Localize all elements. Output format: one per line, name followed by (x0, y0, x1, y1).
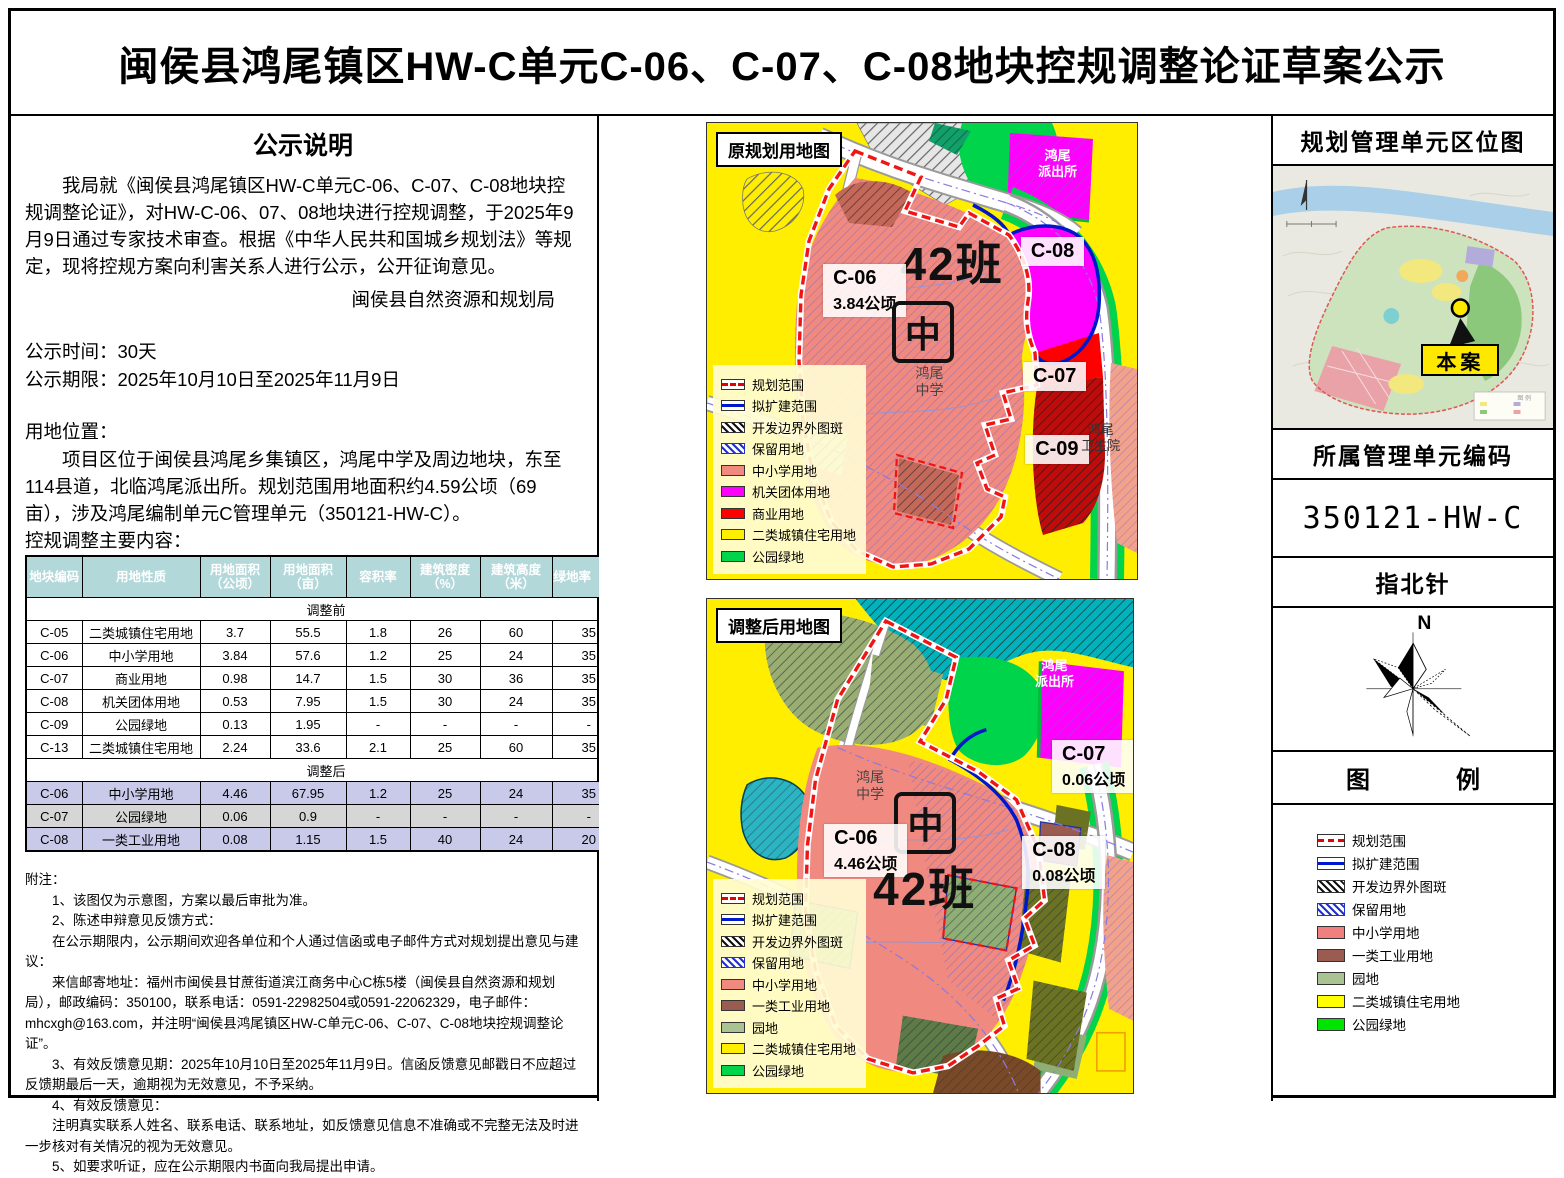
legend-swatch-hatch-blue-icon (721, 957, 745, 968)
plot-c08-label: C-08 0.08公顷 (1022, 836, 1105, 889)
legend-label: 中小学用地 (752, 975, 817, 994)
map-after-legend: 规划范围拟扩建范围开发边界外图斑保留用地中小学用地一类工业用地园地二类城镇住宅用… (713, 879, 866, 1088)
unit-code-value: 350121-HW-C (1273, 480, 1553, 558)
table-cell: 中小学用地 (82, 782, 200, 805)
announce-signature: 闽侯县自然资源和规划局 (25, 286, 555, 312)
legend-label: 园地 (1352, 968, 1379, 988)
adjustment-table: 地块编码用地性质用地面积 （公顷）用地面积 （亩）容积率建筑密度 （%）建筑高度… (25, 555, 627, 852)
location-map-title: 规划管理单元区位图 (1273, 116, 1553, 166)
legend-item: 保留用地 (721, 439, 856, 458)
unit-code-title: 所属管理单元编码 (1273, 430, 1553, 480)
table-cell: - (480, 805, 552, 828)
table-row: C-06中小学用地3.8457.61.2252435 (26, 644, 626, 667)
compass-title: 指北针 (1273, 558, 1553, 608)
legend-swatch-fill-icon (1317, 1018, 1345, 1031)
class-count-label: 42班 (901, 228, 1004, 294)
table-header-cell: 容积率 (346, 556, 410, 598)
legend-label: 规划范围 (1352, 830, 1406, 850)
maps-panel: 原规划用地图 鸿尾 派出所 C-08 42班 C-06 3.84公顷 中 鸿尾 … (599, 116, 1273, 1101)
legend-label: 机关团体用地 (752, 482, 830, 501)
table-cell: C-07 (26, 805, 82, 828)
note-line: 1、该图仅为示意图，方案以最后审批为准。 (25, 891, 581, 912)
legend-item: 拟扩建范围 (1317, 853, 1553, 873)
plot-c09-code: C-09 (1035, 438, 1078, 461)
legend-label: 拟扩建范围 (752, 396, 817, 415)
table-cell: 55.5 (270, 621, 346, 644)
table-cell: 4.46 (200, 782, 270, 805)
table-section-label: 调整前 (26, 598, 626, 621)
plot-c08-code: C-08 (1032, 839, 1095, 862)
school-name-label: 鸿尾 中学 (856, 769, 884, 803)
map-before: 原规划用地图 鸿尾 派出所 C-08 42班 C-06 3.84公顷 中 鸿尾 … (706, 122, 1138, 580)
table-cell: 0.98 (200, 667, 270, 690)
legend-label: 拟扩建范围 (1352, 853, 1420, 873)
legend-swatch-fill-icon (721, 1043, 745, 1054)
table-cell: C-06 (26, 782, 82, 805)
table-cell: 1.5 (346, 690, 410, 713)
map-after-title: 调整后用地图 (716, 608, 842, 643)
legend-swatch-hatch-black-icon (1317, 880, 1345, 893)
location-map: 本案 图 例 (1273, 166, 1553, 430)
table-cell: 1.5 (346, 667, 410, 690)
legend-label: 开发边界外图斑 (752, 418, 843, 437)
table-cell: 25 (410, 782, 480, 805)
table-cell: 1.15 (270, 828, 346, 852)
class-count-label: 42班 (873, 853, 976, 919)
plot-c07-area-value: 0.06公顷 (1062, 766, 1125, 790)
map-before-legend: 规划范围拟扩建范围开发边界外图斑保留用地中小学用地机关团体用地商业用地二类城镇住… (713, 365, 866, 574)
compass-section: N (1273, 608, 1553, 752)
table-heading: 控规调整主要内容： (25, 527, 581, 555)
legend-swatch-fill-icon (1317, 972, 1345, 985)
table-cell: 14.7 (270, 667, 346, 690)
table-cell: 中小学用地 (82, 644, 200, 667)
legend-swatch-dash-icon (721, 893, 745, 904)
svg-text:N: N (1417, 613, 1431, 634)
legend-label: 保留用地 (752, 953, 804, 972)
legend-label: 保留用地 (752, 439, 804, 458)
announce-heading: 公示说明 (25, 126, 581, 162)
table-cell: 30 (410, 667, 480, 690)
legend-item: 规划范围 (721, 889, 856, 908)
note-line: 5、如要求听证，应在公示期限内书面向我局提出申请。 (25, 1157, 581, 1178)
police-station-label: 鸿尾 派出所 (1038, 148, 1077, 180)
announcement-text-panel: 公示说明 我局就《闽侯县鸿尾镇区HW-C单元C-06、C-07、C-08地块控规… (11, 116, 599, 1101)
legend-swatch-fill-icon (721, 508, 745, 519)
right-panel: 规划管理单元区位图 (1273, 116, 1553, 1101)
table-cell: - (346, 713, 410, 736)
table-cell: 24 (480, 690, 552, 713)
table-cell: 3.7 (200, 621, 270, 644)
table-cell: 26 (410, 621, 480, 644)
legend-item: 二类城镇住宅用地 (721, 1039, 856, 1058)
table-cell: C-13 (26, 736, 82, 759)
legend-swatch-fill-icon (721, 529, 745, 540)
table-cell: 1.95 (270, 713, 346, 736)
table-cell: 二类城镇住宅用地 (82, 621, 200, 644)
legend-title-right: 例 (1456, 760, 1480, 795)
table-cell: 1.2 (346, 644, 410, 667)
legend-swatch-line-icon (1317, 857, 1345, 870)
table-cell: C-09 (26, 713, 82, 736)
legend-item: 公园绿地 (1317, 1014, 1553, 1034)
table-cell: 机关团体用地 (82, 690, 200, 713)
legend-item: 拟扩建范围 (721, 396, 856, 415)
plot-c06-code: C-06 (833, 267, 896, 290)
table-header-cell: 用地面积 （公顷） (200, 556, 270, 598)
table-cell: 0.06 (200, 805, 270, 828)
table-row: C-08机关团体用地0.537.951.5302435 (26, 690, 626, 713)
legend-label: 规划范围 (752, 889, 804, 908)
map-before-title: 原规划用地图 (716, 132, 842, 167)
table-header-cell: 地块编码 (26, 556, 82, 598)
table-cell: C-05 (26, 621, 82, 644)
legend-label: 商业用地 (752, 504, 804, 523)
legend-swatch-fill-icon (1317, 949, 1345, 962)
legend-item: 园地 (1317, 968, 1553, 988)
table-cell: 24 (480, 644, 552, 667)
legend-swatch-hatch-black-icon (721, 422, 745, 433)
legend-label: 中小学用地 (1352, 922, 1420, 942)
table-cell: 公园绿地 (82, 713, 200, 736)
table-cell: C-08 (26, 828, 82, 852)
announce-body: 我局就《闽侯县鸿尾镇区HW-C单元C-06、C-07、C-08地块控规调整论证》… (25, 172, 581, 280)
table-cell: 67.95 (270, 782, 346, 805)
legend-label: 一类工业用地 (752, 996, 830, 1015)
table-cell: 0.9 (270, 805, 346, 828)
publicity-period: 公示期限：2025年10月10日至2025年11月9日 (25, 366, 581, 394)
legend-item: 中小学用地 (721, 975, 856, 994)
plot-c07-code: C-07 (1033, 365, 1076, 388)
table-cell: 0.53 (200, 690, 270, 713)
legend-item: 拟扩建范围 (721, 910, 856, 929)
plot-c06-area-value: 3.84公顷 (833, 290, 896, 314)
table-cell: - (410, 713, 480, 736)
legend-swatch-dash-icon (721, 379, 745, 390)
legend-label: 开发边界外图斑 (1352, 876, 1447, 896)
plot-c08-label: C-08 (1021, 237, 1084, 266)
plot-c08-area-value: 0.08公顷 (1032, 862, 1095, 886)
table-header-cell: 用地性质 (82, 556, 200, 598)
table-cell: 0.08 (200, 828, 270, 852)
table-cell: 2.24 (200, 736, 270, 759)
legend-label: 拟扩建范围 (752, 910, 817, 929)
table-header-cell: 建筑高度 （米） (480, 556, 552, 598)
legend-label: 公园绿地 (1352, 1014, 1406, 1034)
police-station-label: 鸿尾 派出所 (1035, 658, 1074, 690)
table-row: C-09公园绿地0.131.95---- (26, 713, 626, 736)
legend-item: 规划范围 (721, 375, 856, 394)
legend-item: 规划范围 (1317, 830, 1553, 850)
legend-swatch-fill-icon (721, 465, 745, 476)
plot-c09-label: C-09 (1025, 435, 1088, 464)
case-location-label: 本案 (1421, 344, 1499, 376)
legend-label: 二类城镇住宅用地 (752, 1039, 856, 1058)
table-cell: 2.1 (346, 736, 410, 759)
table-cell: - (346, 805, 410, 828)
legend-swatch-line-icon (721, 400, 745, 411)
school-name-label: 鸿尾 中学 (916, 365, 944, 399)
table-cell: 40 (410, 828, 480, 852)
legend-swatch-fill-icon (721, 979, 745, 990)
legend-swatch-dash-icon (1317, 834, 1345, 847)
note-line: 2、陈述申辩意见反馈方式： (25, 911, 581, 932)
legend-label: 开发边界外图斑 (752, 932, 843, 951)
legend-swatch-hatch-blue-icon (721, 443, 745, 454)
legend-item: 园地 (721, 1018, 856, 1037)
right-panel-legend: 规划范围拟扩建范围开发边界外图斑保留用地中小学用地一类工业用地园地二类城镇住宅用… (1273, 805, 1553, 1101)
legend-label: 保留用地 (1352, 899, 1406, 919)
legend-label: 中小学用地 (752, 461, 817, 480)
table-section-label: 调整后 (26, 759, 626, 782)
legend-item: 一类工业用地 (721, 996, 856, 1015)
table-cell: 1.5 (346, 828, 410, 852)
plot-c07-code: C-07 (1062, 743, 1125, 766)
plot-c07-label: C-07 (1023, 362, 1086, 391)
legend-label: 园地 (752, 1018, 778, 1037)
note-line: 3、有效反馈意见期：2025年10月10日至2025年11月9日。信函反馈意见邮… (25, 1055, 581, 1096)
notes-block: 附注：1、该图仅为示意图，方案以最后审批为准。2、陈述申辩意见反馈方式：在公示期… (25, 870, 581, 1178)
table-cell: 60 (480, 621, 552, 644)
table-header-cell: 用地面积 （亩） (270, 556, 346, 598)
legend-item: 开发边界外图斑 (721, 418, 856, 437)
table-cell: 3.84 (200, 644, 270, 667)
legend-item: 公园绿地 (721, 1061, 856, 1080)
table-row: C-05二类城镇住宅用地3.755.51.8266035 (26, 621, 626, 644)
legend-item: 二类城镇住宅用地 (721, 525, 856, 544)
table-row: C-13二类城镇住宅用地2.2433.62.1256035 (26, 736, 626, 759)
table-row: C-06中小学用地4.4667.951.2252435 (26, 782, 626, 805)
table-row: C-07公园绿地0.060.9---- (26, 805, 626, 828)
legend-item: 商业用地 (721, 504, 856, 523)
school-mark: 中 (892, 301, 954, 363)
legend-swatch-fill-icon (721, 1022, 745, 1033)
table-cell: 一类工业用地 (82, 828, 200, 852)
note-line: 来信邮寄地址：福州市闽侯县甘蔗街道滨江商务中心C栋5楼（闽侯县自然资源和规划局）… (25, 973, 581, 1055)
legend-item: 保留用地 (1317, 899, 1553, 919)
mini-legend (1474, 392, 1545, 420)
announcement-page: 闽侯县鸿尾镇区HW-C单元C-06、C-07、C-08地块控规调整论证草案公示 … (8, 8, 1556, 1098)
legend-item: 开发边界外图斑 (1317, 876, 1553, 896)
location-map-canvas (1273, 166, 1553, 428)
publicity-time: 公示时间：30天 (25, 338, 581, 366)
legend-label: 二类城镇住宅用地 (752, 525, 856, 544)
legend-item: 开发边界外图斑 (721, 932, 856, 951)
table-section-row: 调整后 (26, 759, 626, 782)
location-heading: 用地位置： (25, 418, 581, 446)
table-cell: 57.6 (270, 644, 346, 667)
table-cell: 33.6 (270, 736, 346, 759)
legend-label: 一类工业用地 (1352, 945, 1433, 965)
page-title: 闽侯县鸿尾镇区HW-C单元C-06、C-07、C-08地块控规调整论证草案公示 (118, 34, 1445, 92)
hospital-label: 鸿尾 卫生院 (1081, 422, 1120, 454)
legend-swatch-fill-icon (721, 551, 745, 562)
table-header-row: 地块编码用地性质用地面积 （公顷）用地面积 （亩）容积率建筑密度 （%）建筑高度… (26, 556, 626, 598)
legend-item: 机关团体用地 (721, 482, 856, 501)
table-cell: C-06 (26, 644, 82, 667)
table-cell: 7.95 (270, 690, 346, 713)
table-header-cell: 建筑密度 （%） (410, 556, 480, 598)
table-row: C-07商业用地0.9814.71.5303635 (26, 667, 626, 690)
legend-label: 二类城镇住宅用地 (1352, 991, 1460, 1011)
legend-swatch-fill-icon (721, 1065, 745, 1076)
plot-c08-code: C-08 (1031, 240, 1074, 263)
table-cell: 0.13 (200, 713, 270, 736)
table-row: C-08一类工业用地0.081.151.5402420 (26, 828, 626, 852)
table-section-row: 调整前 (26, 598, 626, 621)
legend-item: 中小学用地 (1317, 922, 1553, 942)
legend-item: 中小学用地 (721, 461, 856, 480)
legend-swatch-fill-icon (721, 1000, 745, 1011)
note-line: 附注： (25, 870, 581, 891)
table-cell: 商业用地 (82, 667, 200, 690)
table-cell: C-08 (26, 690, 82, 713)
table-cell: 60 (480, 736, 552, 759)
table-cell: 25 (410, 736, 480, 759)
adjust-table-body: 调整前C-05二类城镇住宅用地3.755.51.8266035C-06中小学用地… (26, 598, 626, 852)
legend-item: 公园绿地 (721, 547, 856, 566)
table-cell: 24 (480, 828, 552, 852)
note-line: 注明真实联系人姓名、联系电话、联系地址，如反馈意见信息不准确或不完整无法及时进一… (25, 1116, 581, 1157)
legend-label: 规划范围 (752, 375, 804, 394)
plot-c07-label: C-07 0.06公顷 (1052, 740, 1134, 793)
compass-rose-icon: N (1338, 613, 1488, 745)
legend-swatch-line-icon (721, 914, 745, 925)
legend-label: 公园绿地 (752, 1061, 804, 1080)
table-cell: - (480, 713, 552, 736)
table-cell: C-07 (26, 667, 82, 690)
table-cell: 24 (480, 782, 552, 805)
plot-c06-code: C-06 (834, 827, 897, 850)
table-cell: 二类城镇住宅用地 (82, 736, 200, 759)
title-bar: 闽侯县鸿尾镇区HW-C单元C-06、C-07、C-08地块控规调整论证草案公示 (11, 11, 1553, 116)
legend-title: 图例 (1273, 752, 1553, 805)
table-cell: 公园绿地 (82, 805, 200, 828)
note-line: 在公示期限内，公示期间欢迎各单位和个人通过信函或电子邮件方式对规划提出意见与建议… (25, 932, 581, 973)
table-cell: 1.2 (346, 782, 410, 805)
table-cell: 25 (410, 644, 480, 667)
table-cell: 36 (480, 667, 552, 690)
map-after: 调整后用地图 鸿尾 派出所 C-07 0.06公顷 鸿尾 中学 中 C-06 4… (706, 598, 1134, 1094)
legend-item: 保留用地 (721, 953, 856, 972)
table-cell: 30 (410, 690, 480, 713)
legend-swatch-hatch-blue-icon (1317, 903, 1345, 916)
legend-swatch-hatch-black-icon (721, 936, 745, 947)
legend-swatch-fill-icon (1317, 926, 1345, 939)
location-body: 项目区位于闽侯县鸿尾乡集镇区，鸿尾中学及周边地块，东至114县道，北临鸿尾派出所… (25, 446, 581, 527)
mini-legend-title: 图 例 (1517, 393, 1531, 402)
legend-label: 公园绿地 (752, 547, 804, 566)
legend-swatch-fill-icon (721, 486, 745, 497)
legend-title-left: 图 (1346, 760, 1370, 795)
legend-item: 一类工业用地 (1317, 945, 1553, 965)
table-cell: - (410, 805, 480, 828)
table-cell: 1.8 (346, 621, 410, 644)
adjustment-table-head: 地块编码用地性质用地面积 （公顷）用地面积 （亩）容积率建筑密度 （%）建筑高度… (26, 556, 626, 598)
legend-swatch-fill-icon (1317, 995, 1345, 1008)
legend-item: 二类城镇住宅用地 (1317, 991, 1553, 1011)
